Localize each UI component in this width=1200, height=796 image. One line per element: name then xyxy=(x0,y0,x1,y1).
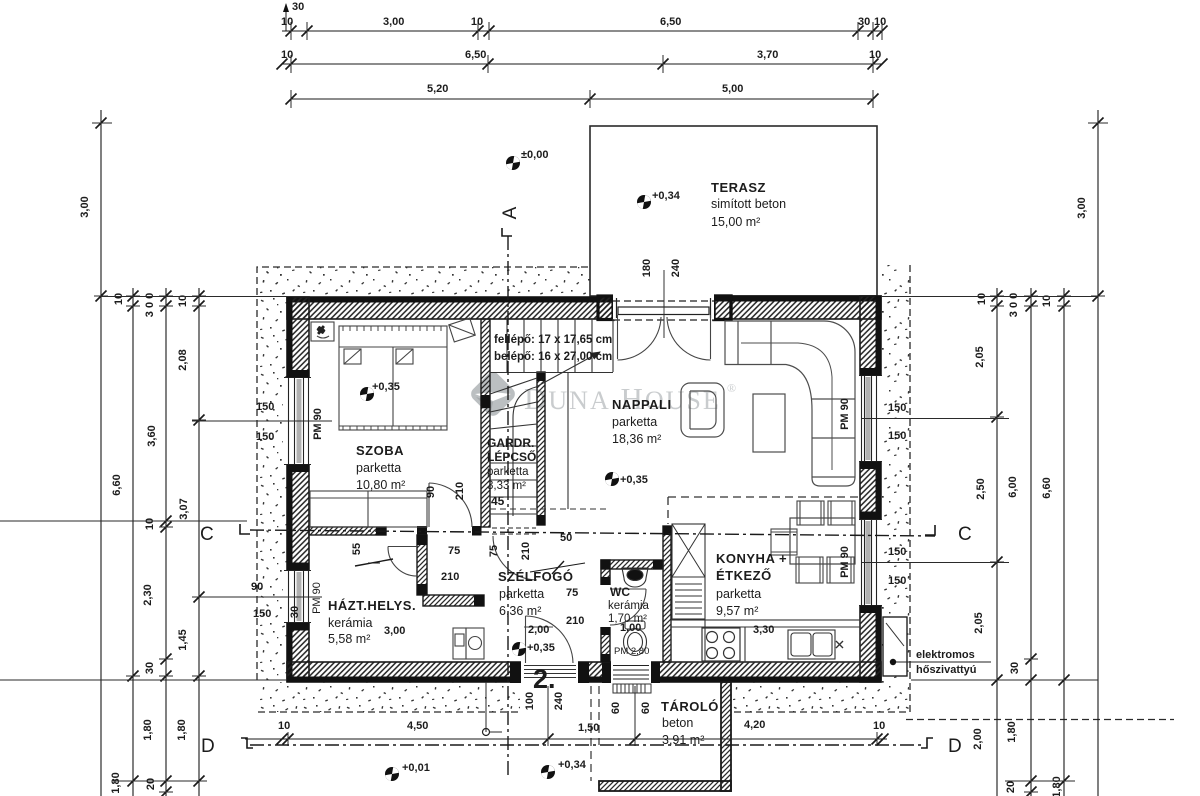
svg-text:60: 60 xyxy=(610,702,622,714)
svg-text:beton: beton xyxy=(662,716,693,730)
svg-text:+0,34: +0,34 xyxy=(558,759,587,771)
svg-text:TÁROLÓ: TÁROLÓ xyxy=(661,699,719,714)
svg-text:2,05: 2,05 xyxy=(973,612,985,633)
svg-text:45: 45 xyxy=(491,494,505,508)
svg-text:3,30: 3,30 xyxy=(753,624,774,636)
svg-text:210: 210 xyxy=(566,615,584,627)
svg-text:10: 10 xyxy=(144,518,156,530)
svg-text:HÁZT.HELYS.: HÁZT.HELYS. xyxy=(328,598,416,613)
svg-text:2,00: 2,00 xyxy=(528,624,549,636)
svg-text:+0,35: +0,35 xyxy=(372,381,400,393)
svg-text:5,20: 5,20 xyxy=(427,83,448,95)
svg-text:10,80 m²: 10,80 m² xyxy=(356,478,405,492)
svg-text:3,60: 3,60 xyxy=(146,425,158,446)
svg-text:3,00: 3,00 xyxy=(1076,197,1088,218)
svg-text:10: 10 xyxy=(281,49,293,61)
svg-text:6,50: 6,50 xyxy=(660,16,681,28)
svg-text:1,80: 1,80 xyxy=(176,719,188,740)
svg-text:150: 150 xyxy=(256,431,274,443)
svg-text:60: 60 xyxy=(640,702,652,714)
svg-text:6,36 m²: 6,36 m² xyxy=(499,604,541,618)
svg-text:2,30: 2,30 xyxy=(142,584,154,605)
svg-text:+0,35: +0,35 xyxy=(620,474,648,486)
svg-text:+0,35: +0,35 xyxy=(527,642,555,654)
svg-text:PM 2,80: PM 2,80 xyxy=(614,646,649,657)
svg-text:parketta: parketta xyxy=(499,587,544,601)
svg-text:PM 90: PM 90 xyxy=(312,408,324,440)
svg-text:2,50: 2,50 xyxy=(975,478,987,499)
svg-text:belépő: 16 x 27,00 cm: belépő: 16 x 27,00 cm xyxy=(494,351,612,363)
svg-text:30: 30 xyxy=(1009,662,1021,674)
svg-text:±0,00: ±0,00 xyxy=(521,149,548,161)
svg-text:180: 180 xyxy=(641,259,653,277)
svg-text:100: 100 xyxy=(524,692,536,710)
svg-text:hőszivattyú: hőszivattyú xyxy=(916,664,977,676)
svg-text:5,58 m²: 5,58 m² xyxy=(328,632,370,646)
svg-text:fellépő: 17 x 17,65 cm: fellépő: 17 x 17,65 cm xyxy=(494,334,612,346)
svg-text:10: 10 xyxy=(278,720,290,732)
svg-text:75: 75 xyxy=(448,545,460,557)
svg-text:5,00: 5,00 xyxy=(722,83,743,95)
svg-text:55: 55 xyxy=(351,543,363,555)
svg-text:10: 10 xyxy=(873,720,885,732)
svg-text:3,00: 3,00 xyxy=(383,16,404,28)
svg-text:90: 90 xyxy=(425,486,437,498)
svg-text:KONYHA +: KONYHA + xyxy=(716,551,787,566)
svg-text:150: 150 xyxy=(888,575,906,587)
svg-text:210: 210 xyxy=(520,542,532,560)
svg-text:20: 20 xyxy=(145,778,157,790)
svg-text:parketta: parketta xyxy=(612,415,657,429)
svg-text:elektromos: elektromos xyxy=(916,649,975,661)
svg-text:2,00: 2,00 xyxy=(972,728,984,749)
svg-text:6,60: 6,60 xyxy=(111,474,123,495)
svg-text:9,57 m²: 9,57 m² xyxy=(716,604,758,618)
svg-text:1,80: 1,80 xyxy=(142,719,154,740)
svg-text:A: A xyxy=(500,206,521,219)
svg-text:4,50: 4,50 xyxy=(407,720,428,732)
svg-text:150: 150 xyxy=(888,546,906,558)
svg-text:150: 150 xyxy=(888,402,906,414)
svg-text:90: 90 xyxy=(251,581,263,593)
svg-text:ÉTKEZŐ: ÉTKEZŐ xyxy=(716,568,772,583)
svg-text:1,80: 1,80 xyxy=(1051,776,1063,796)
svg-text:2.: 2. xyxy=(533,664,556,694)
svg-text:20: 20 xyxy=(1005,781,1017,793)
svg-text:10: 10 xyxy=(281,16,293,28)
svg-text:30: 30 xyxy=(292,1,304,13)
svg-text:18,36 m²: 18,36 m² xyxy=(612,432,661,446)
svg-text:4,20: 4,20 xyxy=(744,719,765,731)
svg-text:simított beton: simított beton xyxy=(711,197,786,211)
svg-text:6,50: 6,50 xyxy=(465,49,486,61)
svg-text:6,60: 6,60 xyxy=(1041,477,1053,498)
svg-text:240: 240 xyxy=(670,259,682,277)
svg-text:2,05: 2,05 xyxy=(974,346,986,367)
svg-text:50: 50 xyxy=(560,532,572,544)
svg-text:GARDR.: GARDR. xyxy=(487,436,534,450)
svg-text:240: 240 xyxy=(553,692,565,710)
svg-text:kerámia: kerámia xyxy=(328,616,373,630)
svg-text:15,00 m²: 15,00 m² xyxy=(711,215,760,229)
svg-text:3,00: 3,00 xyxy=(79,196,91,217)
svg-text:2,08: 2,08 xyxy=(177,349,189,370)
svg-text:PM 90: PM 90 xyxy=(839,398,851,430)
svg-text:PM 90: PM 90 xyxy=(311,582,323,614)
svg-text:parketta: parketta xyxy=(487,466,529,478)
svg-text:75: 75 xyxy=(566,587,578,599)
svg-text:75: 75 xyxy=(488,545,500,557)
svg-text:30: 30 xyxy=(289,606,301,618)
svg-text:TERASZ: TERASZ xyxy=(711,180,766,195)
svg-text:+0,34: +0,34 xyxy=(652,190,681,202)
svg-text:3,33 m²: 3,33 m² xyxy=(487,480,526,492)
svg-text:10: 10 xyxy=(976,293,988,305)
svg-text:30: 30 xyxy=(144,662,156,674)
svg-text:10: 10 xyxy=(874,16,886,28)
svg-text:NAPPALI: NAPPALI xyxy=(612,397,672,412)
svg-text:+0,01: +0,01 xyxy=(402,762,430,774)
svg-text:1,80: 1,80 xyxy=(1006,721,1018,742)
svg-text:1,00: 1,00 xyxy=(620,622,641,634)
svg-text:®: ® xyxy=(727,381,736,395)
svg-text:1,50: 1,50 xyxy=(578,722,599,734)
svg-text:kerámia: kerámia xyxy=(608,600,650,612)
svg-text:C: C xyxy=(958,524,972,545)
svg-text:D: D xyxy=(201,736,215,757)
svg-text:LÉPCSŐ: LÉPCSŐ xyxy=(487,449,536,464)
svg-text:WC: WC xyxy=(610,585,630,599)
svg-text:210: 210 xyxy=(454,482,466,500)
svg-text:150: 150 xyxy=(888,430,906,442)
svg-text:parketta: parketta xyxy=(356,461,401,475)
svg-text:C: C xyxy=(200,524,214,545)
svg-text:10: 10 xyxy=(471,16,483,28)
svg-text:30: 30 xyxy=(858,16,870,28)
svg-text:3,70: 3,70 xyxy=(757,49,778,61)
svg-text:3,07: 3,07 xyxy=(178,498,190,519)
svg-text:1,45: 1,45 xyxy=(177,629,189,650)
svg-text:150: 150 xyxy=(256,401,274,413)
svg-text:3,00: 3,00 xyxy=(384,625,405,637)
svg-text:10: 10 xyxy=(869,49,881,61)
svg-text:D: D xyxy=(948,736,962,757)
svg-text:10: 10 xyxy=(113,293,125,305)
svg-text:parketta: parketta xyxy=(716,587,761,601)
svg-text:150: 150 xyxy=(253,608,271,620)
svg-text:210: 210 xyxy=(441,571,459,583)
svg-text:6,00: 6,00 xyxy=(1007,476,1019,497)
svg-text:SZOBA: SZOBA xyxy=(356,443,404,458)
svg-text:1,80: 1,80 xyxy=(110,772,122,793)
svg-text:PM 90: PM 90 xyxy=(839,546,851,578)
